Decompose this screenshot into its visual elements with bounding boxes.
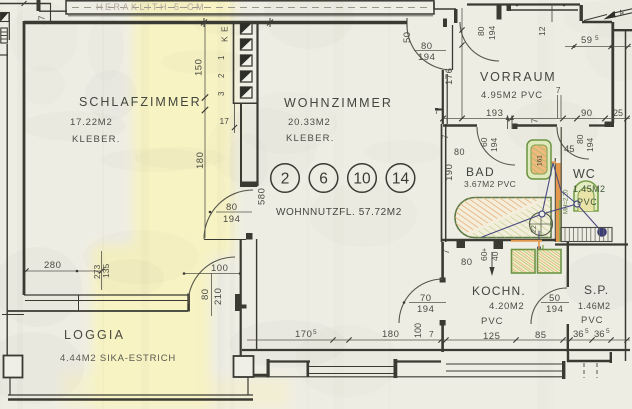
svg-text:194: 194 (546, 304, 563, 315)
svg-text:180: 180 (382, 329, 399, 340)
svg-text:193: 193 (486, 108, 503, 119)
svg-text:210: 210 (213, 288, 224, 305)
svg-text:80: 80 (476, 26, 486, 36)
svg-text:80: 80 (575, 134, 585, 144)
svg-text:20.33M2: 20.33M2 (288, 117, 331, 128)
svg-text:+: + (482, 248, 489, 252)
svg-text:40: 40 (490, 251, 500, 261)
svg-text:135: 135 (101, 264, 111, 278)
svg-text:KLEBER.: KLEBER. (72, 134, 121, 145)
svg-text:K: K (220, 36, 230, 42)
svg-text:36: 36 (573, 329, 584, 340)
svg-text:6: 6 (319, 171, 328, 188)
svg-text:WOHNNUTZFL. 57.72M2: WOHNNUTZFL. 57.72M2 (276, 207, 402, 218)
svg-text:5: 5 (313, 329, 317, 336)
svg-text:BAD: BAD (466, 165, 495, 179)
svg-text:5: 5 (606, 328, 610, 335)
svg-text:3.67M2 PVC: 3.67M2 PVC (464, 179, 516, 189)
svg-text:5: 5 (595, 35, 599, 42)
svg-text:PVC: PVC (581, 315, 604, 326)
svg-text:4.95M2 PVC: 4.95M2 PVC (481, 90, 543, 101)
svg-text:KOCHN.: KOCHN. (472, 284, 526, 298)
svg-text:580: 580 (257, 188, 268, 205)
svg-text:190: 190 (444, 164, 455, 181)
svg-text:17: 17 (220, 116, 230, 126)
svg-text:194: 194 (417, 304, 434, 315)
svg-text:VORRAUM: VORRAUM (480, 70, 557, 84)
svg-text:PVC: PVC (481, 316, 504, 327)
svg-text:E: E (220, 26, 230, 32)
svg-text:280: 280 (44, 260, 61, 271)
svg-text:45: 45 (564, 144, 575, 155)
svg-text:HERAKLITH 5-CM: HERAKLITH 5-CM (96, 2, 206, 12)
svg-text:59: 59 (581, 35, 593, 46)
svg-text:4.44M2 SIKA-ESTRICH: 4.44M2 SIKA-ESTRICH (60, 353, 176, 364)
svg-text:KLEBER.: KLEBER. (286, 133, 335, 144)
svg-text:80: 80 (454, 147, 465, 157)
svg-text:7: 7 (556, 86, 561, 95)
svg-text:12: 12 (537, 26, 547, 36)
svg-text:100: 100 (211, 263, 228, 274)
svg-text:7: 7 (435, 107, 440, 116)
svg-text:22: 22 (531, 225, 538, 233)
svg-text:7: 7 (442, 249, 451, 254)
svg-text:25: 25 (613, 108, 623, 118)
svg-text:7: 7 (429, 329, 434, 339)
svg-text:SCHLAFZIMMER: SCHLAFZIMMER (79, 95, 202, 109)
svg-text:194: 194 (585, 138, 595, 152)
svg-text:MH=2.20: MH=2.20 (564, 189, 570, 214)
svg-text:100: 100 (413, 323, 423, 338)
svg-text:170: 170 (295, 329, 312, 340)
svg-text:150: 150 (194, 59, 205, 76)
svg-text:PVC: PVC (577, 197, 597, 207)
svg-text:85: 85 (535, 330, 547, 341)
svg-text:80: 80 (226, 202, 238, 213)
svg-text:14: 14 (392, 171, 410, 188)
svg-text:WC: WC (573, 167, 596, 181)
svg-text:10: 10 (353, 171, 371, 188)
svg-text:7: 7 (531, 118, 540, 123)
svg-text:1.45M2: 1.45M2 (573, 184, 605, 194)
svg-text:2: 2 (281, 171, 290, 188)
svg-text:5: 5 (585, 328, 589, 335)
svg-text:194: 194 (223, 214, 240, 225)
svg-text:80: 80 (461, 257, 473, 268)
svg-text:194: 194 (489, 138, 499, 152)
svg-text:2: 2 (217, 73, 226, 78)
svg-text:WOHNZIMMER: WOHNZIMMER (284, 96, 393, 110)
svg-text:194: 194 (487, 26, 497, 40)
svg-text:161: 161 (537, 155, 544, 166)
svg-text:3: 3 (217, 91, 226, 96)
svg-text:4.20M2: 4.20M2 (489, 301, 524, 312)
svg-text:60: 60 (479, 137, 489, 147)
svg-text:LOGGIA: LOGGIA (64, 328, 125, 342)
svg-text:50: 50 (402, 31, 413, 43)
svg-text:1: 1 (217, 55, 226, 60)
svg-text:7: 7 (441, 134, 450, 139)
svg-text:90: 90 (581, 108, 593, 119)
svg-text:176: 176 (444, 68, 455, 85)
svg-text:17.22M2: 17.22M2 (70, 117, 113, 128)
svg-text:S.P.: S.P. (584, 283, 609, 297)
svg-text:1.46M2: 1.46M2 (578, 301, 610, 311)
svg-text:194: 194 (418, 52, 435, 63)
svg-text:125: 125 (483, 331, 500, 342)
svg-text:180: 180 (195, 152, 206, 169)
svg-text:36: 36 (594, 329, 605, 340)
svg-text:80: 80 (200, 288, 211, 300)
